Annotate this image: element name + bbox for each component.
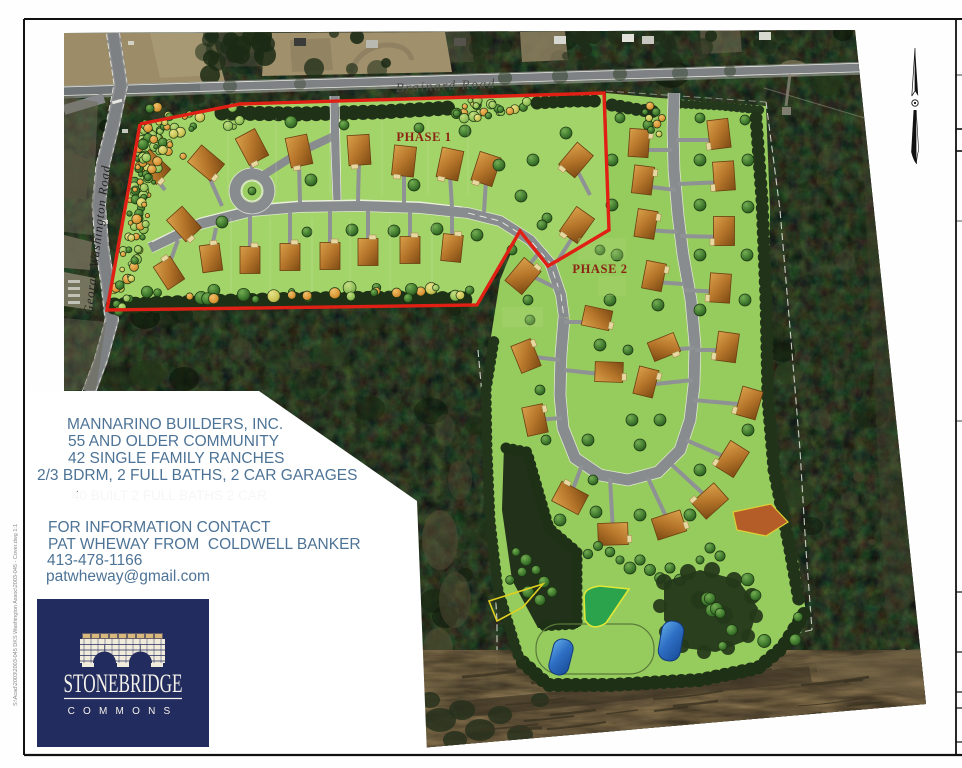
svg-text:413-478-1166: 413-478-1166	[47, 552, 142, 569]
svg-text:patwheway@gmail.com: patwheway@gmail.com	[46, 568, 210, 585]
svg-text:55 AND OLDER COMMUNITY: 55 AND OLDER COMMUNITY	[68, 433, 279, 450]
svg-text:PHASE 2: PHASE 2	[572, 262, 627, 276]
svg-text:2/3 BDRM, 2 FULL BATHS, 2 CAR: 2/3 BDRM, 2 FULL BATHS, 2 CAR GARAGES	[37, 467, 357, 484]
svg-text:FOR INFORMATION CONTACT: FOR INFORMATION CONTACT	[48, 519, 271, 536]
svg-text:42 SINGLE FAMILY RANCHES: 42 SINGLE FAMILY RANCHES	[68, 450, 285, 467]
svg-text:40 BUILT 2 FULL BATHS 2 CAR: 40 BUILT 2 FULL BATHS 2 CAR	[72, 488, 267, 503]
svg-text:S:\Acad\2003\2003-045 DKS Wash: S:\Acad\2003\2003-045 DKS Washington Ass…	[13, 524, 19, 706]
svg-text:COMMONS: COMMONS	[68, 706, 179, 717]
svg-text:STONEBRIDGE: STONEBRIDGE	[64, 669, 183, 698]
svg-text:MANNARINO BUILDERS, INC.: MANNARINO BUILDERS, INC.	[67, 416, 283, 433]
svg-text:PHASE 1: PHASE 1	[396, 130, 451, 144]
svg-text:PAT WHEWAY FROM COLDWELL BANK: PAT WHEWAY FROM COLDWELL BANKER	[48, 536, 361, 553]
